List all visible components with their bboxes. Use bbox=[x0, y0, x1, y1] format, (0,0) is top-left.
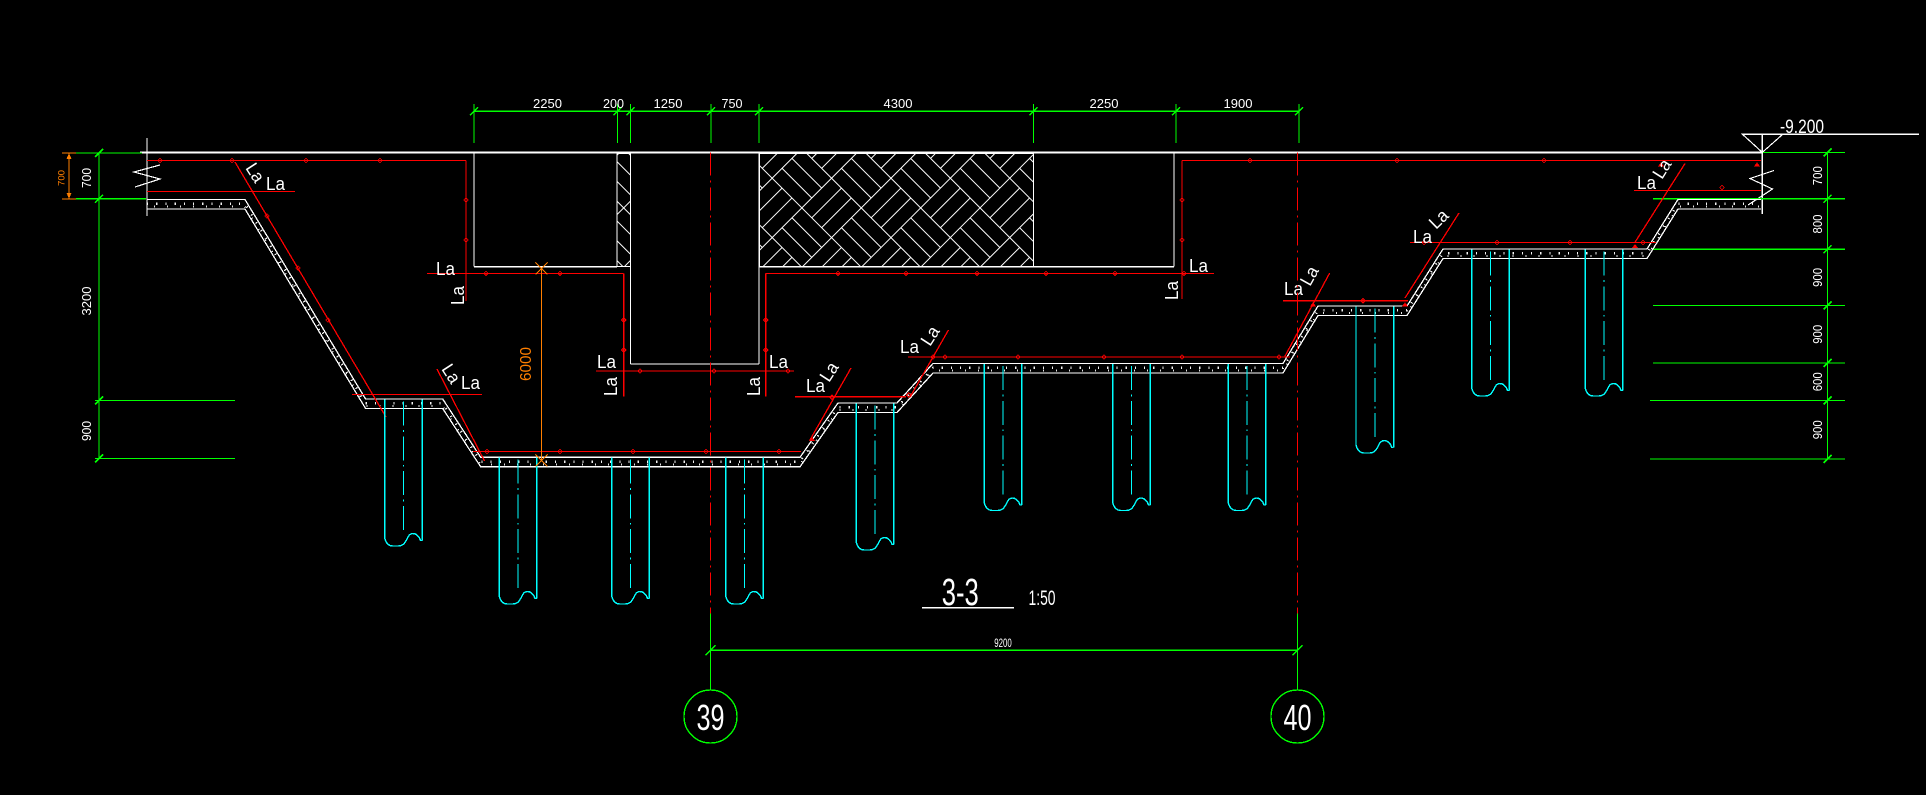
svg-text:900: 900 bbox=[79, 421, 94, 441]
svg-text:La: La bbox=[744, 376, 764, 396]
svg-text:La: La bbox=[1413, 227, 1433, 247]
svg-text:La: La bbox=[1162, 280, 1182, 300]
svg-text:700: 700 bbox=[1810, 166, 1825, 185]
svg-text:800: 800 bbox=[1810, 215, 1825, 234]
svg-text:39: 39 bbox=[697, 697, 725, 738]
svg-text:La: La bbox=[597, 352, 617, 372]
svg-text:200: 200 bbox=[603, 96, 624, 111]
svg-text:6000: 6000 bbox=[518, 347, 535, 381]
svg-text:600: 600 bbox=[1810, 372, 1825, 391]
svg-text:700: 700 bbox=[57, 170, 67, 186]
svg-text:750: 750 bbox=[722, 96, 743, 111]
svg-text:La: La bbox=[769, 352, 789, 372]
svg-text:1900: 1900 bbox=[1224, 96, 1253, 111]
svg-text:1250: 1250 bbox=[654, 96, 683, 111]
svg-text:900: 900 bbox=[1810, 268, 1825, 287]
svg-text:900: 900 bbox=[1810, 420, 1825, 439]
svg-text:La: La bbox=[266, 174, 286, 194]
svg-text:La: La bbox=[436, 259, 456, 279]
svg-text:2250: 2250 bbox=[1090, 96, 1119, 111]
svg-text:La: La bbox=[448, 285, 468, 305]
svg-text:700: 700 bbox=[79, 168, 94, 188]
svg-text:900: 900 bbox=[1810, 325, 1825, 344]
svg-text:40: 40 bbox=[1284, 697, 1312, 738]
svg-text:2250: 2250 bbox=[533, 96, 562, 111]
svg-text:3200: 3200 bbox=[79, 287, 94, 316]
svg-text:9200: 9200 bbox=[994, 636, 1012, 650]
svg-text:4300: 4300 bbox=[884, 96, 913, 111]
svg-text:La: La bbox=[1189, 256, 1209, 276]
svg-text:La: La bbox=[900, 337, 920, 357]
svg-text:-9.200: -9.200 bbox=[1780, 117, 1824, 138]
svg-text:1:50: 1:50 bbox=[1029, 587, 1056, 610]
svg-text:La: La bbox=[601, 376, 621, 396]
